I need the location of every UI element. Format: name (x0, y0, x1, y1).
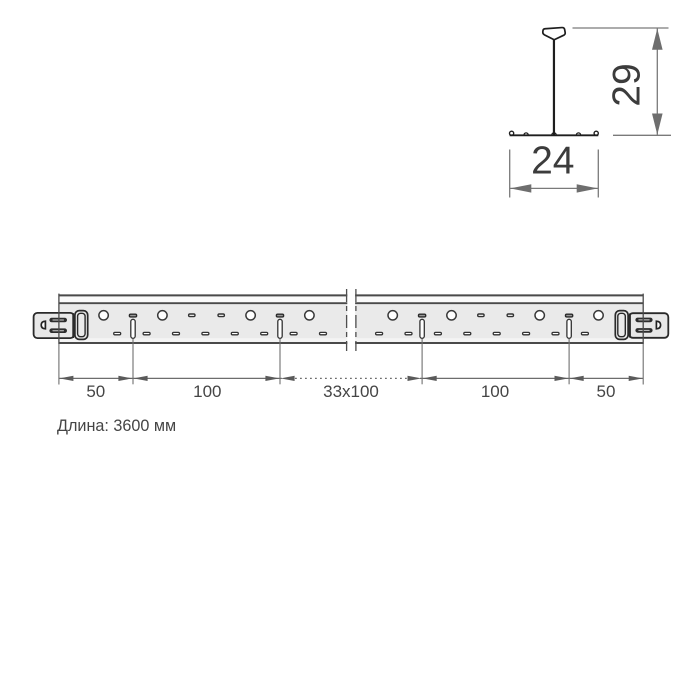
svg-text:24: 24 (531, 140, 574, 183)
svg-text:100: 100 (481, 382, 509, 401)
svg-text:50: 50 (86, 382, 105, 401)
svg-text:29: 29 (606, 63, 649, 106)
svg-text:33x100: 33x100 (323, 382, 379, 401)
svg-text:Длина: 3600 мм: Длина: 3600 мм (57, 417, 176, 435)
svg-text:50: 50 (597, 382, 616, 401)
svg-text:100: 100 (193, 382, 221, 401)
